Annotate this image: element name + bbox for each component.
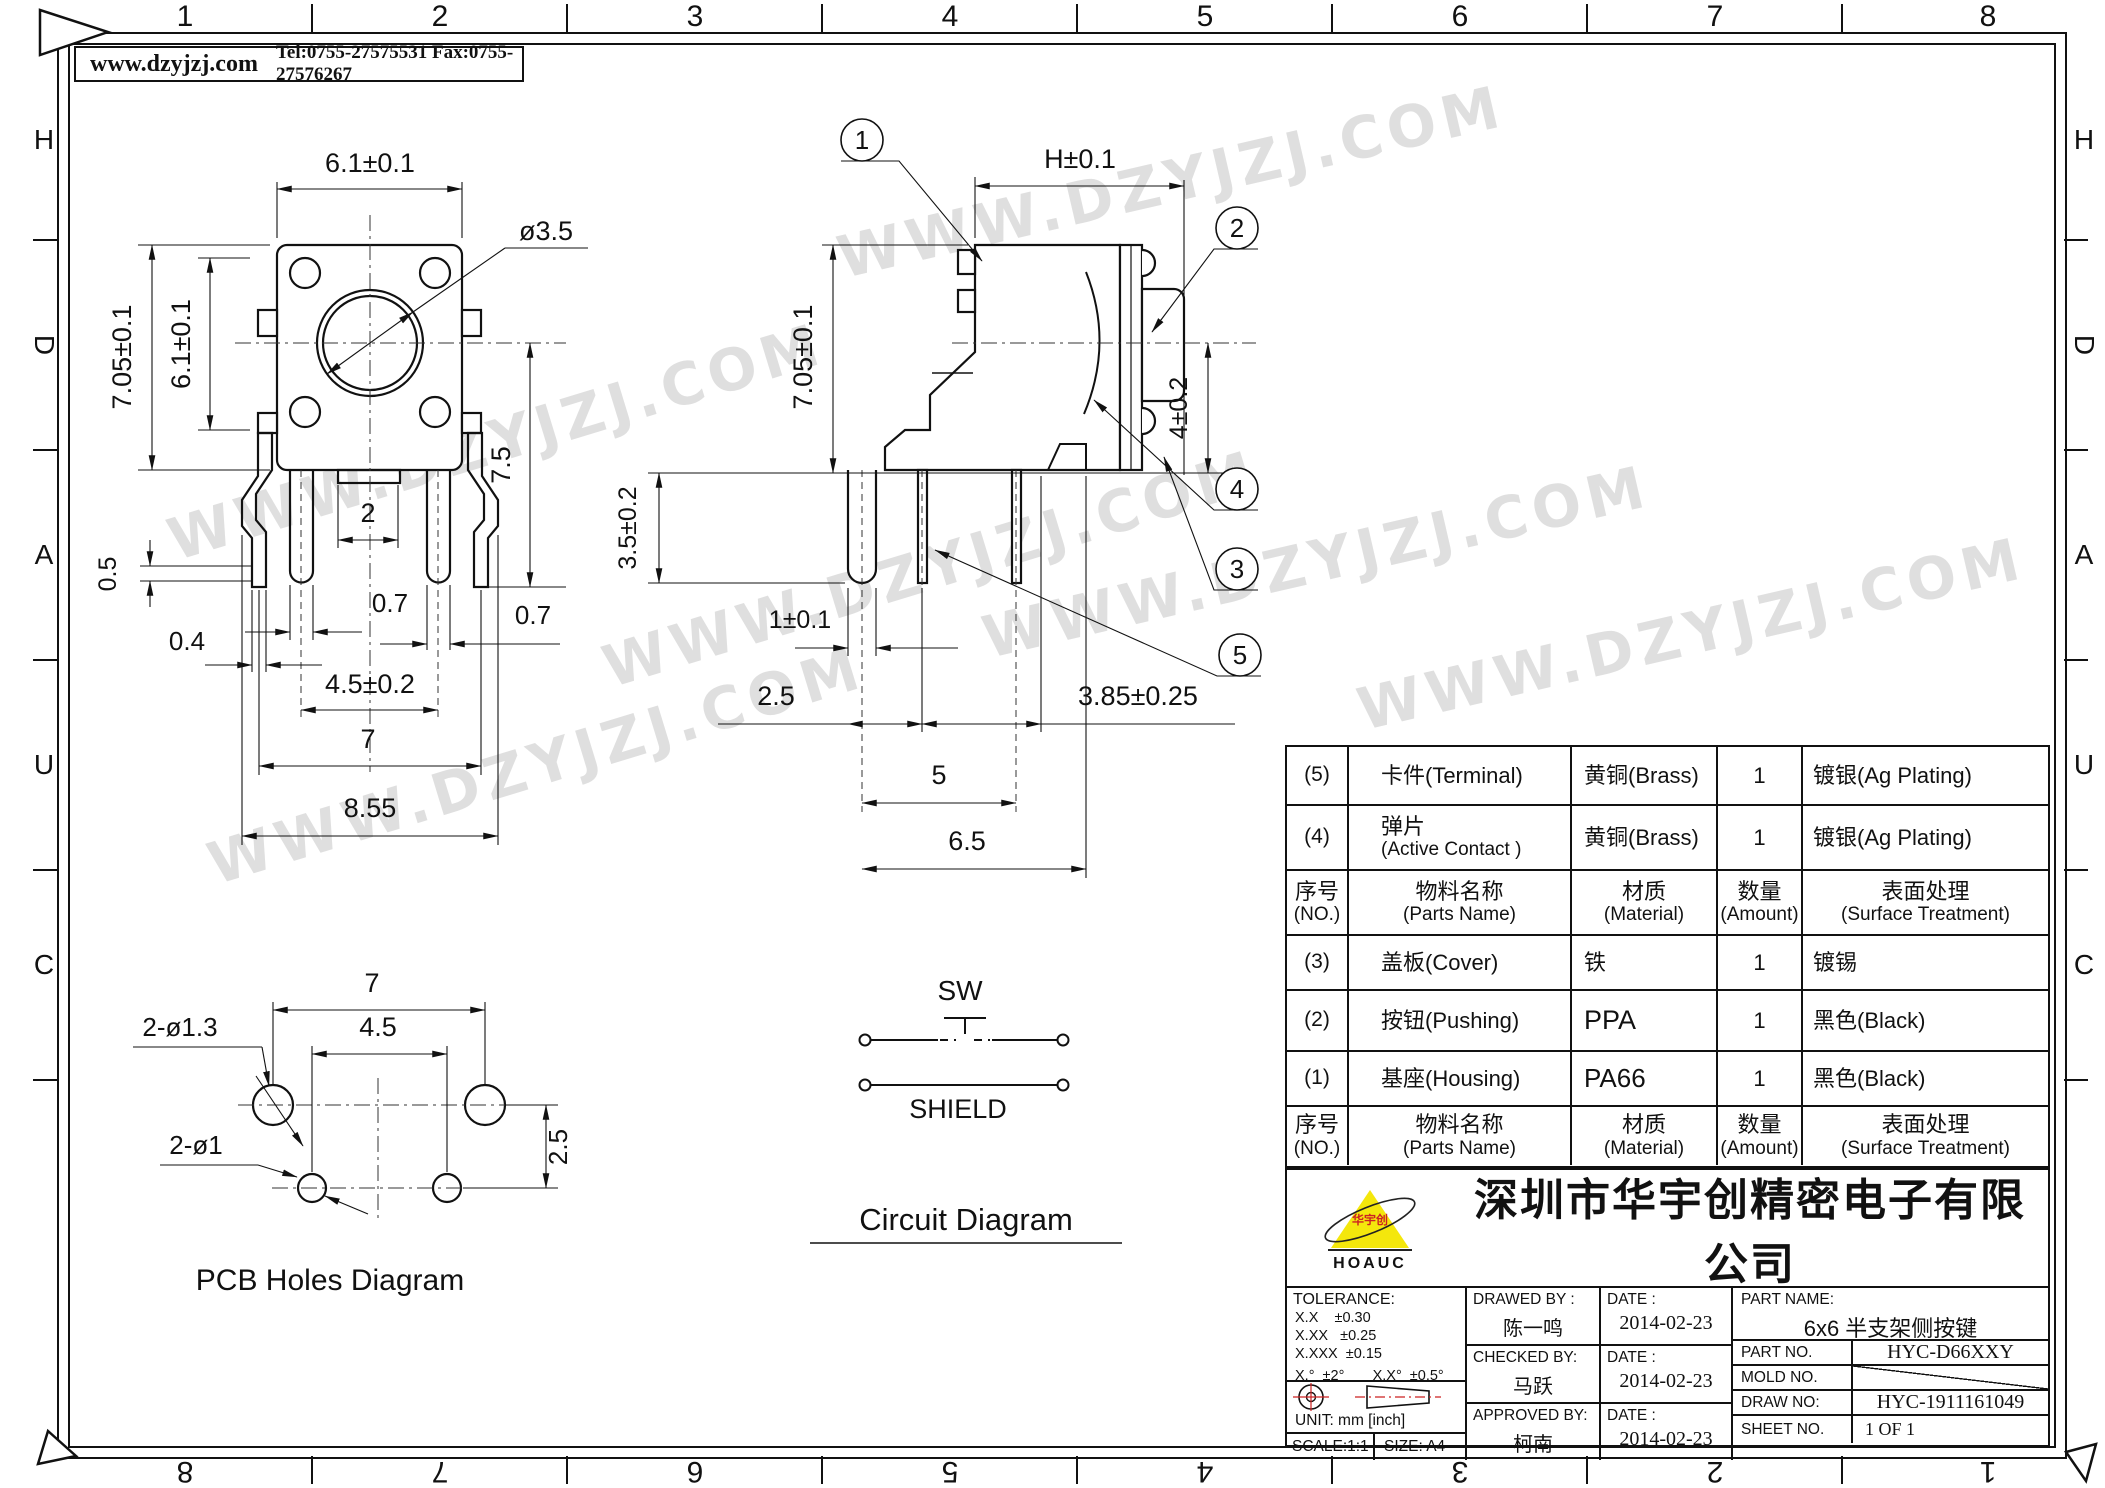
bom-header-material: 材质(Material) [1570, 871, 1716, 934]
date-column: DATE : 2014-02-23 DATE : 2014-02-23 DATE… [1599, 1288, 1731, 1460]
bom-header-amount: 数量(Amount) [1716, 871, 1801, 934]
company-logo: 华宇创 HOAUC [1287, 1182, 1452, 1274]
part-no-cell: PART NO. HYC-D66XXY [1733, 1341, 2048, 1366]
date-label: DATE : [1607, 1407, 1725, 1425]
bom-surface-2: (Surface Treatment) [1841, 1138, 2010, 1160]
company-name: 深圳市华宇创精密电子有限公司 [1452, 1164, 2048, 1292]
bom-cell-amount: 1 [1716, 806, 1801, 869]
tolerance-row-2: X.XX ±0.25 [1287, 1327, 1465, 1345]
approved-by-name: 柯南 [1473, 1428, 1593, 1457]
dim-pin-pitch: 4.5±0.2 [325, 669, 415, 699]
sheet-no-cell: SHEET NO. 1 OF 1 [1733, 1416, 2048, 1443]
bom-cell-name: 按钮(Pushing) [1347, 991, 1570, 1050]
bom-row: (5) 卡件(Terminal) 黄铜(Brass) 1 镀银(Ag Plati… [1287, 747, 2048, 804]
part-name-value: 6x6 半支架侧按键 [1741, 1311, 2040, 1343]
bom-header-no: 序号(NO.) [1287, 1107, 1347, 1165]
bom-cell-surface: 黑色(Black) [1801, 1052, 2048, 1105]
bom-amount: 1 [1753, 825, 1765, 850]
bom-cell-surface: 镀锡 [1801, 936, 2048, 989]
bom-cell-surface: 镀银(Ag Plating) [1801, 747, 2048, 804]
pcb-dim-7: 7 [364, 968, 379, 998]
callout-4: 4 [1230, 474, 1244, 504]
dim-pin-gap: 2 [360, 498, 375, 528]
pcb-dim-2-5: 2.5 [543, 1129, 573, 1165]
drawed-by-label: DRAWED BY : [1473, 1291, 1593, 1309]
bom-no: (4) [1304, 825, 1330, 849]
unit-label: UNIT: mm [inch] [1295, 1412, 1405, 1430]
bom-cell-no: (3) [1287, 936, 1347, 989]
bom-no: (1) [1304, 1066, 1330, 1090]
bom-cell-material: 黄铜(Brass) [1570, 747, 1716, 804]
bom-cell-no: (1) [1287, 1052, 1347, 1105]
title-grid: TOLERANCE: X.X ±0.30 X.XX ±0.25 X.XXX ±0… [1287, 1288, 2048, 1444]
drawed-date: 2014-02-23 [1607, 1312, 1725, 1335]
bom-surface: 表面处理 [1881, 879, 1969, 904]
bom-header-surface: 表面处理(Surface Treatment) [1801, 871, 2048, 934]
signature-column: DRAWED BY : 陈一鸣 CHECKED BY: 马跃 APPROVED … [1465, 1288, 1599, 1460]
bom-amount: 1 [1753, 950, 1765, 975]
checked-date-cell: DATE : 2014-02-23 [1601, 1346, 1731, 1404]
callout-5: 5 [1233, 640, 1247, 670]
bom-material: 黄铜(Brass) [1584, 825, 1699, 850]
part-name-label: PART NAME: [1741, 1291, 2040, 1309]
drawing-sheet: WWW.DZYJZJ.COM WWW.DZYJZJ.COM WWW.DZYJZJ… [0, 0, 2105, 1488]
bom-no: (2) [1304, 1008, 1330, 1032]
bom-no: (3) [1304, 950, 1330, 974]
drawed-by-name: 陈一鸣 [1473, 1312, 1593, 1341]
approved-date-cell: DATE : 2014-02-23 [1601, 1404, 1731, 1460]
part-no-label: PART NO. [1733, 1341, 1853, 1364]
bom-amount: 数量 [1737, 1112, 1781, 1137]
title-company-row: 华宇创 HOAUC 深圳市华宇创精密电子有限公司 [1287, 1170, 2048, 1288]
logo-cn-text: 华宇创 [1351, 1212, 1387, 1227]
dim-6-5: 6.5 [948, 826, 986, 856]
dim-3-85: 3.85±0.25 [1078, 681, 1198, 711]
bom-header-material: 材质(Material) [1570, 1107, 1716, 1165]
dim-pin-width-left: 0.7 [372, 588, 408, 618]
bom-material: 黄铜(Brass) [1584, 763, 1699, 788]
part-name-cell: PART NAME: 6x6 半支架侧按键 [1733, 1288, 2048, 1341]
checked-by-cell: CHECKED BY: 马跃 [1467, 1346, 1599, 1404]
pcb-view-title: PCB Holes Diagram [196, 1264, 464, 1297]
bom-surface: 黑色(Black) [1813, 1008, 1925, 1033]
bom-cell-amount: 1 [1716, 1052, 1801, 1105]
scale-row: SCALE:1:1 SIZE: A4 [1287, 1432, 1465, 1460]
bom-cell-surface: 镀银(Ag Plating) [1801, 806, 2048, 869]
tolerance-label: TOLERANCE: [1287, 1288, 1465, 1309]
bom-amount: 1 [1753, 763, 1765, 788]
dim-pin-width-right: 0.7 [515, 600, 551, 630]
bom-header-name: 物料名称(Parts Name) [1347, 1107, 1570, 1165]
bom-name: 基座(Housing) [1381, 1066, 1520, 1091]
bom-name: 盖板(Cover) [1381, 950, 1498, 975]
circuit-shield-label: SHIELD [909, 1094, 1007, 1124]
circuit-text: SW SHIELD Circuit Diagram [859, 975, 1073, 1237]
bom-material-2: (Material) [1604, 904, 1684, 926]
bom-material: PPA [1584, 1005, 1636, 1036]
bom-name: 弹片 [1381, 814, 1425, 839]
bom-amount: 1 [1753, 1008, 1765, 1033]
callout-1: 1 [855, 125, 869, 155]
dim-inner-height: 6.1±0.1 [166, 299, 196, 389]
bom-amount-2: (Amount) [1720, 1138, 1798, 1160]
bom-table: (5) 卡件(Terminal) 黄铜(Brass) 1 镀银(Ag Plati… [1285, 745, 2050, 1168]
bom-surface: 镀银(Ag Plating) [1813, 825, 1972, 850]
bom-cell-amount: 1 [1716, 991, 1801, 1050]
first-angle-projection-icon [1289, 1382, 1461, 1412]
bom-cell-material: PA66 [1570, 1052, 1716, 1105]
mold-no-cell: MOLD NO. [1733, 1366, 2048, 1391]
dim-body-height: 7.05±0.1 [788, 305, 818, 410]
bom-no: 序号 [1295, 879, 1339, 904]
checked-by-name: 马跃 [1473, 1370, 1593, 1399]
bom-cell-surface: 黑色(Black) [1801, 991, 2048, 1050]
title-block: 华宇创 HOAUC 深圳市华宇创精密电子有限公司 TOLERANCE: X.X … [1285, 1168, 2050, 1447]
bom-name-2: (Parts Name) [1403, 1138, 1516, 1160]
bom-name: 物料名称 [1415, 879, 1503, 904]
mold-no-value [1853, 1366, 2048, 1389]
pcb-dim-4-5: 4.5 [359, 1012, 397, 1042]
bom-cell-no: (4) [1287, 806, 1347, 869]
date-label: DATE : [1607, 1291, 1725, 1309]
bom-name: 卡件(Terminal) [1381, 763, 1523, 788]
date-label: DATE : [1607, 1349, 1725, 1367]
bom-cell-name: 基座(Housing) [1347, 1052, 1570, 1105]
logo-text: HOAUC [1333, 1255, 1407, 1272]
dim-h: H±0.1 [1044, 144, 1116, 174]
bom-row: (4) 弹片(Active Contact ) 黄铜(Brass) 1 镀银(A… [1287, 804, 2048, 869]
bom-material: 铁 [1584, 950, 1606, 975]
mold-no-label: MOLD NO. [1733, 1366, 1853, 1389]
bom-cell-material: 黄铜(Brass) [1570, 806, 1716, 869]
dim-bracket-width: 0.4 [169, 626, 205, 656]
sheet-no-label: SHEET NO. [1733, 1416, 1853, 1443]
drawed-by-cell: DRAWED BY : 陈一鸣 [1467, 1288, 1599, 1346]
callout-2: 2 [1230, 213, 1244, 243]
bom-surface: 黑色(Black) [1813, 1066, 1925, 1091]
checked-date: 2014-02-23 [1607, 1370, 1725, 1393]
bom-amount: 1 [1753, 1066, 1765, 1091]
bom-cell-material: 铁 [1570, 936, 1716, 989]
bom-name: 按钮(Pushing) [1381, 1008, 1519, 1033]
bom-amount-2: (Amount) [1720, 904, 1798, 926]
dim-leg-length: 7.5 [486, 446, 516, 484]
tolerance-block: TOLERANCE: X.X ±0.30 X.XX ±0.25 X.XXX ±0… [1287, 1288, 1465, 1460]
bom-cell-no: (2) [1287, 991, 1347, 1050]
bom-cell-material: PPA [1570, 991, 1716, 1050]
dim-outer-height: 7.05±0.1 [107, 305, 137, 410]
bom-no-2: (NO.) [1294, 1138, 1340, 1160]
tolerance-row-3: X.XXX ±0.15 [1287, 1345, 1465, 1363]
bom-amount: 数量 [1737, 879, 1781, 904]
bom-cell-name: 弹片(Active Contact ) [1347, 806, 1570, 869]
bom-surface: 镀银(Ag Plating) [1813, 763, 1972, 788]
bom-name: 物料名称 [1415, 1112, 1503, 1137]
pcb-text: 7 4.5 2.5 2-ø1.3 2-ø1 PCB Holes Diagram [142, 968, 573, 1297]
approved-date: 2014-02-23 [1607, 1428, 1725, 1451]
bom-header-row: 序号(NO.) 物料名称(Parts Name) 材质(Material) 数量… [1287, 869, 2048, 934]
draw-no-label: DRAW NO: [1733, 1391, 1853, 1414]
draw-no-value: HYC-1911161049 [1853, 1391, 2048, 1414]
pcb-holes-view [253, 1085, 505, 1202]
bom-no: 序号 [1295, 1112, 1339, 1137]
dim-2-5: 2.5 [757, 681, 795, 711]
checked-by-label: CHECKED BY: [1473, 1349, 1593, 1367]
logo-icon: 华宇创 HOAUC [1312, 1182, 1428, 1274]
bom-row: (3) 盖板(Cover) 铁 1 镀锡 [1287, 934, 2048, 989]
circuit-sw-label: SW [937, 975, 983, 1006]
approved-by-cell: APPROVED BY: 柯南 [1467, 1404, 1599, 1460]
bom-row: (1) 基座(Housing) PA66 1 黑色(Black) [1287, 1050, 2048, 1105]
bom-surface: 镀锡 [1813, 950, 1857, 975]
bom-material: 材质 [1622, 879, 1666, 904]
dim-bracket-pitch: 7 [360, 724, 375, 754]
bom-cell-name: 卡件(Terminal) [1347, 747, 1570, 804]
sheet-no-value: 1 OF 1 [1853, 1416, 2048, 1443]
bom-header-amount: 数量(Amount) [1716, 1107, 1801, 1165]
bom-row: (2) 按钮(Pushing) PPA 1 黑色(Black) [1287, 989, 2048, 1050]
pcb-holes-small-label: 2-ø1 [169, 1130, 222, 1160]
part-info-column: PART NAME: 6x6 半支架侧按键 PART NO. HYC-D66XX… [1731, 1288, 2048, 1460]
dim-offset: 0.5 [94, 557, 122, 592]
bom-cell-name: 盖板(Cover) [1347, 936, 1570, 989]
tolerance-row-1: X.X ±0.30 [1287, 1309, 1465, 1327]
bom-name-2: (Active Contact ) [1381, 839, 1521, 861]
size-value: SIZE: A4 [1375, 1434, 1465, 1460]
dim-hole-diameter: ø3.5 [519, 216, 573, 246]
bom-header-no: 序号(NO.) [1287, 871, 1347, 934]
drawed-date-cell: DATE : 2014-02-23 [1601, 1288, 1731, 1346]
part-no-value: HYC-D66XXY [1853, 1341, 2048, 1364]
bom-name-2: (Parts Name) [1403, 904, 1516, 926]
pcb-centerlines [238, 1078, 522, 1220]
approved-by-label: APPROVED BY: [1473, 1407, 1593, 1425]
bom-no-2: (NO.) [1294, 904, 1340, 926]
bom-header-row: 序号(NO.) 物料名称(Parts Name) 材质(Material) 数量… [1287, 1105, 2048, 1165]
dim-5: 5 [931, 760, 946, 790]
bom-material: PA66 [1584, 1064, 1646, 1094]
bom-surface: 表面处理 [1881, 1112, 1969, 1137]
dim-button: 4±0.2 [1165, 377, 1193, 439]
circuit-title: Circuit Diagram [859, 1202, 1073, 1237]
callout-3: 3 [1230, 554, 1244, 584]
dim-pin-width: 1±0.1 [769, 606, 831, 634]
bom-header-name: 物料名称(Parts Name) [1347, 871, 1570, 934]
bom-material-2: (Material) [1604, 1138, 1684, 1160]
bom-cell-amount: 1 [1716, 747, 1801, 804]
dim-leg-length: 3.5±0.2 [614, 486, 642, 569]
bom-header-surface: 表面处理(Surface Treatment) [1801, 1107, 2048, 1165]
bom-material: 材质 [1622, 1112, 1666, 1137]
bom-cell-amount: 1 [1716, 936, 1801, 989]
dim-total-width: 8.55 [344, 793, 397, 823]
bom-surface-2: (Surface Treatment) [1841, 904, 2010, 926]
pcb-holes-large-label: 2-ø1.3 [142, 1012, 217, 1042]
dim-top-width: 6.1±0.1 [325, 148, 415, 178]
bom-cell-no: (5) [1287, 747, 1347, 804]
scale-value: SCALE:1:1 [1287, 1434, 1375, 1460]
bom-no: (5) [1304, 763, 1330, 787]
draw-no-cell: DRAW NO: HYC-1911161049 [1733, 1391, 2048, 1416]
